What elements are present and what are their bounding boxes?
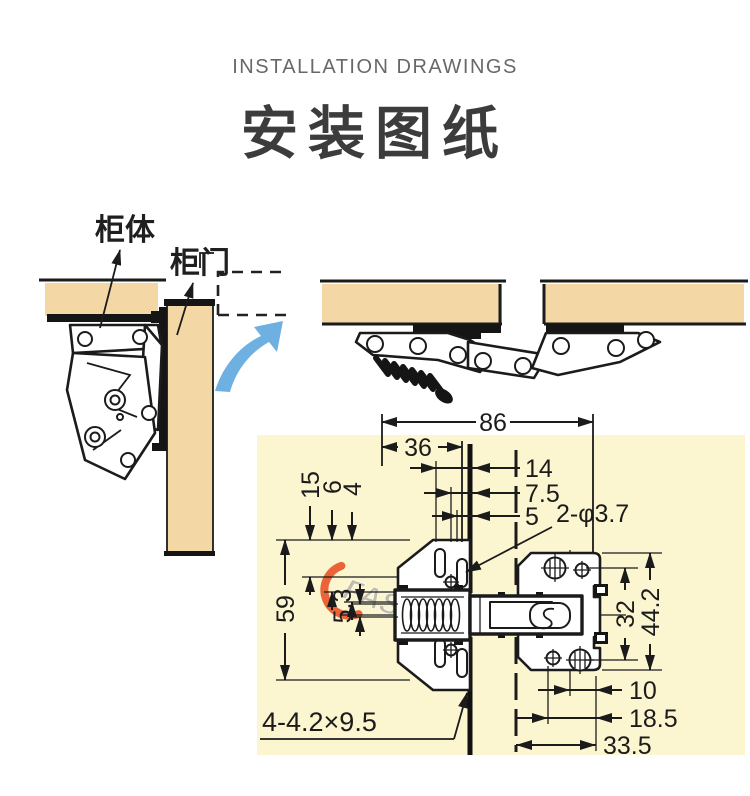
svg-text:44.2: 44.2 xyxy=(637,588,665,637)
logo-stamp xyxy=(530,603,570,628)
svg-text:32: 32 xyxy=(612,600,640,628)
open-position-diagram xyxy=(318,258,750,410)
svg-text:14: 14 xyxy=(525,455,553,483)
cabinet-door-label: 柜门 xyxy=(170,247,230,280)
svg-text:4-4.2×9.5: 4-4.2×9.5 xyxy=(262,707,377,737)
closed-hinge-mechanism xyxy=(67,325,162,479)
svg-text:10: 10 xyxy=(629,677,657,705)
left-panel xyxy=(320,281,506,339)
spring-barrel xyxy=(395,585,470,645)
svg-text:5: 5 xyxy=(525,503,539,531)
svg-text:18.5: 18.5 xyxy=(629,705,678,733)
dimension-drawing: FASTINY xyxy=(248,400,750,770)
svg-text:5.3: 5.3 xyxy=(329,589,357,624)
page: { "header": { "subtitle": "INSTALLATION … xyxy=(0,0,750,796)
svg-text:2-φ3.7: 2-φ3.7 xyxy=(556,500,629,528)
svg-text:86: 86 xyxy=(479,409,507,437)
door-swing-arrow-icon xyxy=(215,321,283,392)
svg-text:59: 59 xyxy=(272,595,300,623)
svg-text:33.5: 33.5 xyxy=(603,732,652,760)
svg-text:36: 36 xyxy=(404,434,432,462)
cabinet-body-label: 柜体 xyxy=(95,214,156,247)
open-hinge-mechanism xyxy=(356,332,660,407)
page-title: 安装图纸 xyxy=(0,88,750,170)
page-subtitle: INSTALLATION DRAWINGS xyxy=(0,56,750,79)
svg-text:4: 4 xyxy=(339,482,367,496)
right-panel xyxy=(540,281,748,339)
